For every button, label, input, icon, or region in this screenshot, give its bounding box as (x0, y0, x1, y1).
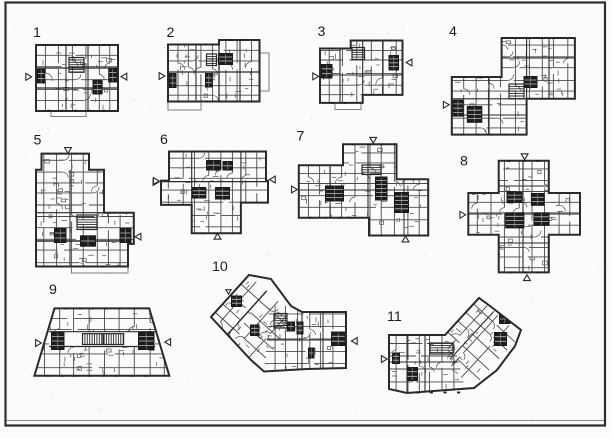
svg-text:8: 8 (460, 154, 468, 170)
svg-text:9: 9 (49, 282, 57, 298)
svg-text:11: 11 (387, 309, 402, 325)
svg-text:3: 3 (318, 24, 326, 40)
svg-text:2: 2 (167, 25, 175, 41)
svg-text:5: 5 (34, 133, 42, 149)
svg-text:4: 4 (449, 24, 457, 40)
svg-text:1: 1 (33, 25, 41, 41)
svg-text:6: 6 (160, 132, 168, 148)
svg-text:10: 10 (212, 259, 228, 275)
svg-text:7: 7 (297, 129, 305, 145)
